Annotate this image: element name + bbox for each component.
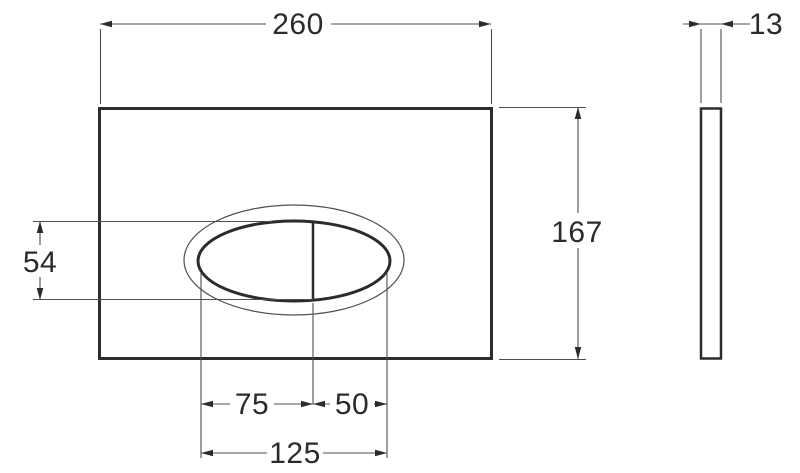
plate-outline <box>100 109 492 359</box>
side-profile-outline <box>701 109 721 359</box>
dim-plate-thickness-label: 13 <box>749 8 783 41</box>
arrowhead-left-icon <box>100 21 112 28</box>
technical-drawing-canvas: 260 13 167 54 <box>0 0 800 473</box>
dim-button-height: 54 <box>23 221 313 300</box>
arrowhead-down-icon <box>575 347 582 359</box>
arrowhead-left-icon <box>201 450 213 457</box>
arrowhead-up-icon <box>37 221 44 233</box>
arrowhead-right-icon <box>375 450 387 457</box>
arrowhead-right-icon <box>301 401 313 408</box>
dim-button-left-width-label: 75 <box>235 388 269 421</box>
button-ellipse <box>198 221 390 301</box>
arrowhead-right-icon <box>375 401 387 408</box>
dim-button-right-width-label: 50 <box>335 388 369 421</box>
side-view <box>701 109 721 359</box>
arrowhead-down-icon <box>37 288 44 300</box>
arrowhead-up-icon <box>575 107 582 119</box>
arrowhead-left-icon <box>313 401 325 408</box>
arrowhead-right-icon <box>479 21 491 28</box>
front-view <box>100 109 492 359</box>
dim-plate-height: 167 <box>499 107 603 360</box>
dim-plate-thickness: 13 <box>683 8 783 103</box>
dim-button-total-width-label: 125 <box>269 437 321 470</box>
arrowhead-left-icon <box>721 21 733 28</box>
arrowhead-right-icon <box>689 21 701 28</box>
dim-button-height-label: 54 <box>23 246 57 279</box>
arrowhead-left-icon <box>201 401 213 408</box>
dim-plate-width: 260 <box>100 8 492 104</box>
dimension-drawing: 260 13 167 54 <box>0 0 800 473</box>
dim-plate-width-label: 260 <box>272 8 324 41</box>
dim-plate-height-label: 167 <box>551 216 603 249</box>
